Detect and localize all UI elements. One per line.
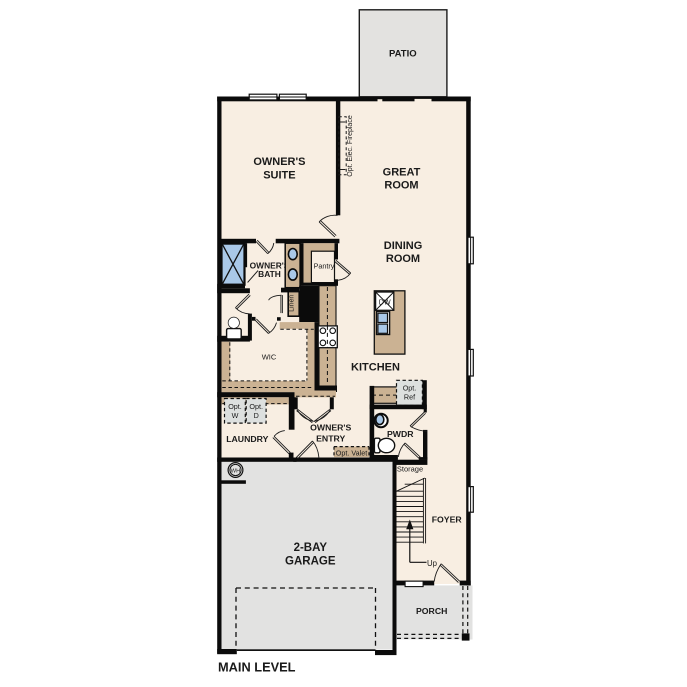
svg-text:DINING: DINING bbox=[384, 240, 423, 252]
svg-text:Linen: Linen bbox=[289, 295, 296, 312]
svg-text:PORCH: PORCH bbox=[416, 606, 447, 616]
svg-text:Opt.: Opt. bbox=[228, 402, 242, 411]
svg-text:Opt. Valet: Opt. Valet bbox=[336, 448, 367, 457]
svg-text:Opt.: Opt. bbox=[249, 402, 263, 411]
svg-text:ROOM: ROOM bbox=[386, 253, 420, 265]
svg-text:OWNER'S: OWNER'S bbox=[253, 156, 305, 168]
svg-text:2-BAY: 2-BAY bbox=[294, 542, 328, 554]
svg-text:KITCHEN: KITCHEN bbox=[351, 362, 400, 374]
svg-text:Pantry: Pantry bbox=[314, 261, 335, 270]
svg-text:D: D bbox=[254, 411, 259, 420]
svg-text:ROOM: ROOM bbox=[384, 179, 418, 191]
svg-text:Ref: Ref bbox=[404, 392, 415, 401]
svg-text:Opt. Elec. Fireplace: Opt. Elec. Fireplace bbox=[347, 115, 354, 177]
svg-text:Up: Up bbox=[427, 559, 438, 568]
svg-text:W: W bbox=[232, 411, 239, 420]
svg-text:MAIN LEVEL: MAIN LEVEL bbox=[218, 660, 296, 675]
svg-text:Opt.: Opt. bbox=[403, 383, 417, 392]
svg-text:WIC: WIC bbox=[262, 352, 277, 361]
svg-text:PATIO: PATIO bbox=[389, 49, 417, 60]
svg-text:DW: DW bbox=[379, 297, 391, 306]
svg-text:Storage: Storage bbox=[397, 465, 423, 474]
svg-text:FOYER: FOYER bbox=[432, 514, 463, 524]
svg-text:GARAGE: GARAGE bbox=[285, 556, 336, 568]
svg-text:WH: WH bbox=[231, 468, 241, 474]
svg-text:GREAT: GREAT bbox=[383, 166, 421, 178]
svg-text:OWNER'S: OWNER'S bbox=[310, 423, 351, 433]
svg-text:LAUNDRY: LAUNDRY bbox=[226, 434, 268, 444]
svg-text:SUITE: SUITE bbox=[263, 169, 295, 181]
svg-text:ENTRY: ENTRY bbox=[316, 434, 345, 444]
svg-text:BATH: BATH bbox=[258, 269, 281, 279]
svg-text:PWDR: PWDR bbox=[387, 429, 414, 439]
